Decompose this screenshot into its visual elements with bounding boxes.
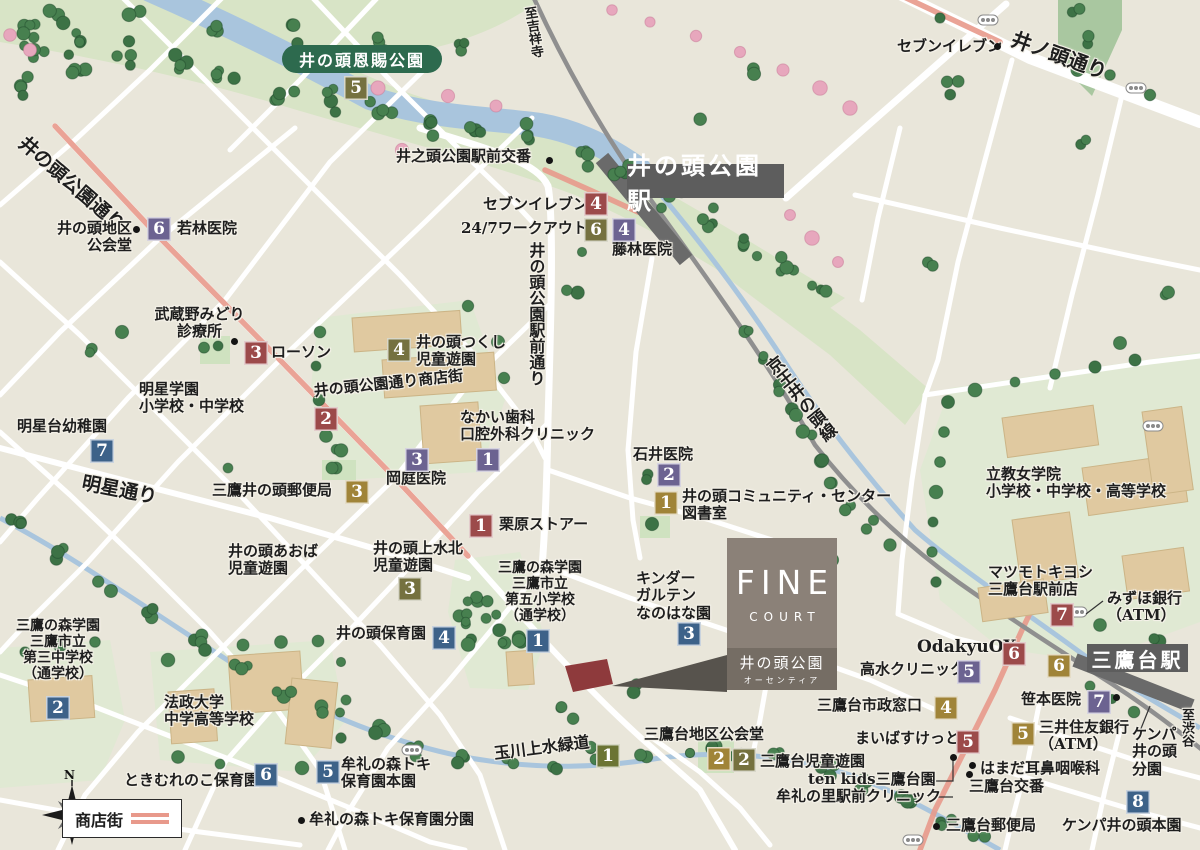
map-number-badge: 7: [1050, 603, 1074, 627]
poi-mure-toki-bunen: 牟礼の森トキ保育園分園: [309, 811, 474, 828]
poi-dot: [298, 817, 305, 824]
poi-murenosato-clinic: 牟礼の里駅前クリニック: [776, 788, 941, 805]
poi-matsumotokiyoshi: マツモトキヨシ 三鷹台駅前店: [988, 564, 1093, 599]
map-number-badge: 2: [707, 747, 731, 771]
poi-fujibayashi-clinic: 藤林医院: [612, 241, 672, 258]
poi-dot: [969, 762, 976, 769]
poi-dot: [133, 226, 140, 233]
poi-mizuho-bank: みずほ銀行 （ATM）: [1107, 590, 1182, 625]
poi-shisei-madoguchi: 三鷹台市政窓口: [817, 697, 922, 714]
map-number-badge: 1: [526, 629, 550, 653]
poi-mure-toki-honen: 牟礼の森トキ 保育園本園: [341, 756, 431, 791]
poi-inokashira-chiku-kokaido: 井の頭地区 公会堂: [48, 220, 132, 255]
poi-tokimurenoko-hoikuen: ときむれのこ保育園: [124, 772, 259, 789]
map-number-badge: 4: [612, 218, 636, 242]
poi-meisei-gakuen: 明星学園 小学校・中学校: [139, 381, 244, 416]
map-number-badge: 5: [956, 730, 980, 754]
map-number-badge: 2: [314, 407, 338, 431]
poi-myojodai-kindergarten: 明星台幼稚園: [17, 418, 107, 435]
poi-wakabayashi-clinic: 若林医院: [177, 220, 237, 237]
map-number-badge: 4: [387, 338, 411, 362]
station-name-box: 三鷹台駅: [1087, 644, 1188, 672]
poi-smbc-bank: 三井住友銀行 （ATM）: [1039, 719, 1129, 754]
labels-layer: セブンイレブン井ノ頭通り井之頭公園駅前交番至吉祥寺セブンイレブン24/7ワークア…: [0, 0, 1200, 850]
map-number-badge: 3: [345, 480, 369, 504]
poi-mitakadai-chiku-kokaido: 三鷹台地区公会堂: [644, 726, 764, 743]
map-number-badge: 4: [584, 192, 608, 216]
map-number-badge: 6: [584, 218, 608, 242]
poi-seven-eleven-north: セブンイレブン: [897, 38, 1002, 55]
poi-community-center: 井の頭コミュニティ・センター 図書室: [682, 488, 891, 523]
map-number-badge: 8: [1126, 790, 1150, 814]
poi-dot: [933, 823, 940, 830]
poi-mitakadai-post: 三鷹台郵便局: [946, 817, 1036, 834]
map-number-badge: 5: [316, 760, 340, 784]
map-number-badge: 4: [432, 626, 456, 650]
map-number-badge: 1: [476, 448, 500, 472]
road-tamagawa-josui: 玉川上水緑道: [493, 733, 591, 763]
poi-nakai-dental: なかい歯科 口腔外科クリニック: [460, 409, 595, 444]
poi-dot: [1113, 694, 1120, 701]
poi-musashino-midori-clinic: 武蔵野みどり 診療所: [152, 306, 247, 341]
map-number-badge: 5: [957, 660, 981, 684]
map-number-badge: 1: [654, 491, 678, 515]
road-inokashira-dori: 井ノ頭通り: [1008, 28, 1110, 84]
poi-mitakadai-jido-yuen: 三鷹台児童遊園: [760, 753, 865, 770]
road-to-kichijoji: 至吉祥寺: [520, 6, 543, 60]
map-number-badge: 2: [46, 696, 70, 720]
map-number-badge: 7: [90, 439, 114, 463]
poi-dot: [231, 338, 238, 345]
poi-sasamoto-clinic: 笹本医院: [1021, 691, 1081, 708]
illustrated-access-map: 井の頭恩賜公園 FINE COURT 井の頭公園 オーセンティア 商店街 N セ…: [0, 0, 1200, 850]
poi-takamizu-clinic: 高水クリニック: [860, 661, 965, 678]
poi-koban-north: 井之頭公園駅前交番: [396, 148, 531, 165]
poi-daisan-junior-high: 三鷹の森学園 三鷹市立 第三中学校 （通学校）: [8, 618, 108, 682]
poi-shotengai-label: 井の頭公園通り商店街: [313, 367, 464, 400]
road-ekimae-dori: 井の頭公園駅前通り: [526, 242, 544, 386]
poi-mitaka-inokashira-post: 三鷹井の頭郵便局: [212, 482, 332, 499]
map-number-badge: 7: [1087, 690, 1111, 714]
poi-kenpa-bunen: ケンパ 井の頭 分園: [1132, 726, 1177, 778]
poi-kurihara-store: 栗原ストアー: [499, 516, 588, 533]
poi-josuikita-park: 井の頭上水北 児童遊園: [373, 540, 463, 575]
poi-daigo-elementary: 三鷹の森学園 三鷹市立 第五小学校 （通学校）: [494, 560, 586, 624]
map-number-badge: 3: [398, 577, 422, 601]
rail-keio-inokashira-line: 京王井の頭線: [760, 354, 838, 446]
map-number-badge: 6: [147, 217, 171, 241]
road-to-shibuya: 至渋谷: [1178, 708, 1193, 747]
poi-hamada-ent: はまだ耳鼻咽喉科: [980, 760, 1100, 777]
map-number-badge: 4: [934, 696, 958, 720]
station-name-box: 井の頭公園駅: [627, 164, 784, 198]
poi-okaniwa-clinic: 岡庭医院: [386, 470, 446, 487]
map-number-badge: 6: [1047, 654, 1071, 678]
poi-inokashira-hoikuen: 井の頭保育園: [336, 625, 426, 642]
poi-seven-eleven-station: セブンイレブン: [483, 196, 588, 213]
map-number-badge: 3: [405, 448, 429, 472]
poi-aoba-park: 井の頭あおば 児童遊園: [228, 543, 318, 578]
map-number-badge: 3: [677, 622, 701, 646]
poi-247-workout: 24/7ワークアウト: [461, 220, 588, 237]
map-number-badge: 1: [469, 514, 493, 538]
poi-kindergarten-nanohana: キンダー ガルテン なのはな園: [636, 570, 711, 622]
map-number-badge: 5: [1011, 722, 1035, 746]
poi-lawson: ローソン: [271, 344, 331, 361]
poi-dot: [546, 157, 553, 164]
poi-hosei-univ-school: 法政大学 中学高等学校: [164, 694, 254, 729]
road-myojo-dori: 明星通り: [80, 473, 159, 509]
poi-mitakadai-koban: 三鷹台交番: [969, 778, 1044, 795]
poi-dot: [950, 754, 957, 761]
poi-kenpa-honen: ケンパ井の頭本園: [1062, 817, 1182, 834]
map-number-badge: 3: [244, 341, 268, 365]
map-number-badge: 5: [344, 76, 368, 100]
map-number-badge: 2: [657, 463, 681, 487]
poi-ten-kids: ten kids三鷹台園: [808, 771, 936, 788]
poi-rikkyo-jogakuin: 立教女学院 小学校・中学校・高等学校: [986, 466, 1166, 501]
poi-maibasuketto: まいばすけっと: [855, 730, 960, 747]
poi-dot: [994, 43, 1001, 50]
poi-dot: [966, 771, 973, 778]
map-number-badge: 2: [732, 748, 756, 772]
map-number-badge: 6: [254, 763, 278, 787]
poi-tsukushi-park: 井の頭つくし 児童遊園: [416, 334, 506, 369]
map-number-badge: 6: [1002, 642, 1026, 666]
poi-ishii-clinic: 石井医院: [633, 446, 693, 463]
map-number-badge: 1: [596, 744, 620, 768]
